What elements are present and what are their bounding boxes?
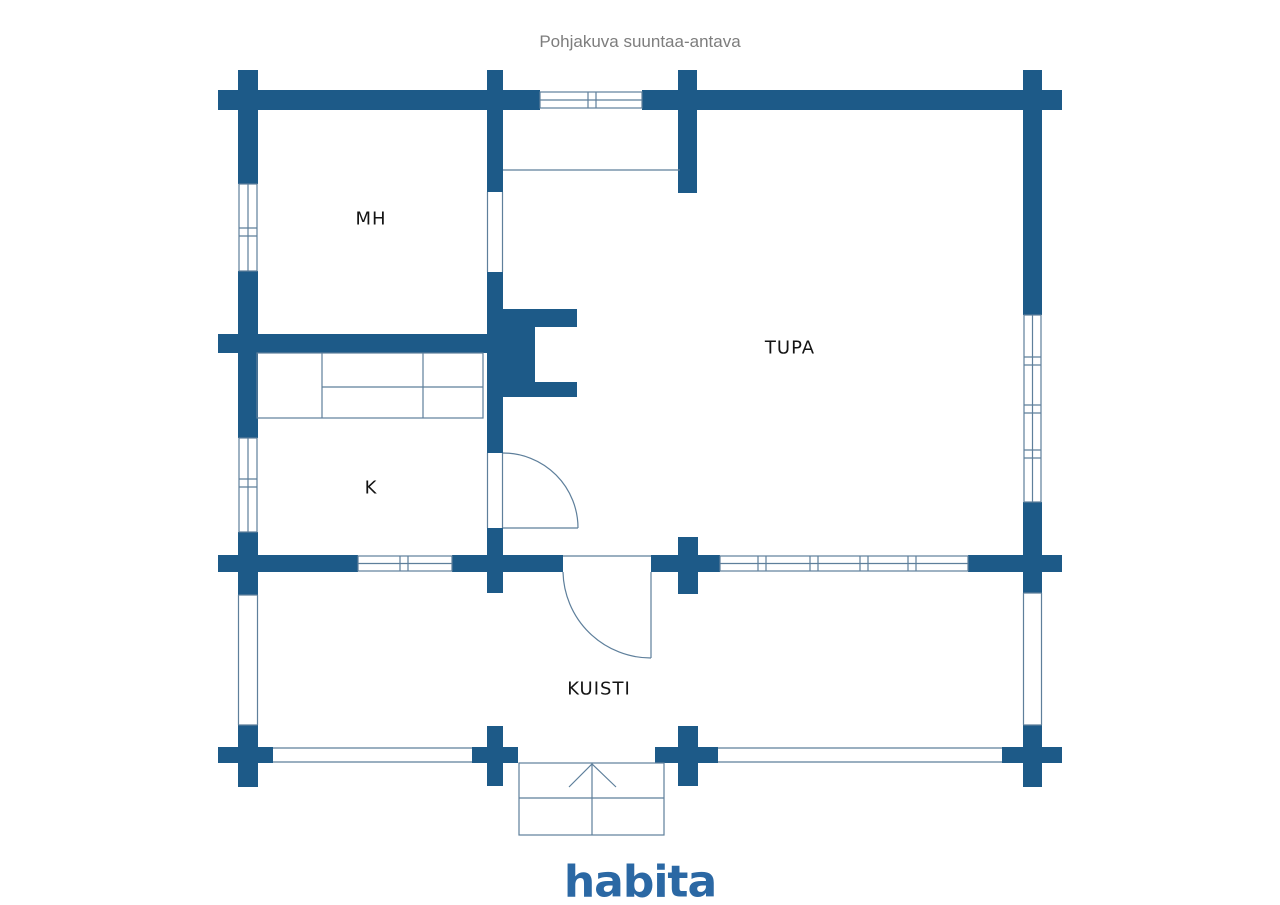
walls (218, 70, 1062, 787)
porch-opening-east (1023, 593, 1042, 725)
log-pillar-south-wall (678, 537, 698, 594)
opening-mh-tupa (487, 192, 503, 272)
fireplace-hearth-opening (535, 327, 577, 382)
room-label-kuisti: KUISTI (567, 679, 631, 700)
floor-plan-page: Pohjakuva suuntaa-antava (0, 0, 1280, 905)
fireplace (503, 309, 577, 397)
porch-pillar-right-crossbar (655, 747, 718, 763)
room-label-tupa: TUPA (765, 338, 815, 359)
porch-railing-left (273, 748, 472, 762)
window-tupa-east (1023, 315, 1042, 502)
window-mh-west (238, 184, 258, 271)
porch-pillar-left-crossbar (472, 747, 518, 763)
wall-tupa-stub (678, 70, 697, 193)
window-k-south (358, 555, 452, 572)
door-k-hall (487, 453, 578, 528)
door-kuisti-swing-arc (563, 572, 651, 658)
habita-logo: habita (564, 857, 716, 905)
window-k-west (238, 438, 258, 532)
porch-corner-right-crossbar (1002, 747, 1062, 763)
porch-railing-right (718, 748, 1002, 762)
kitchen-counters (257, 353, 483, 418)
porch-corner-left-crossbar (218, 747, 273, 763)
entrance-steps (519, 763, 664, 835)
room-label-mh: MH (355, 209, 386, 230)
door-k-swing-arc (503, 453, 578, 528)
door-hall-kuisti (563, 555, 651, 658)
window-north (540, 90, 642, 110)
wall-mh-k-divider (218, 334, 503, 353)
room-label-k: K (365, 478, 378, 499)
porch-opening-west (238, 595, 258, 725)
window-tupa-south (720, 555, 968, 572)
floor-plan-drawing (0, 0, 1280, 905)
